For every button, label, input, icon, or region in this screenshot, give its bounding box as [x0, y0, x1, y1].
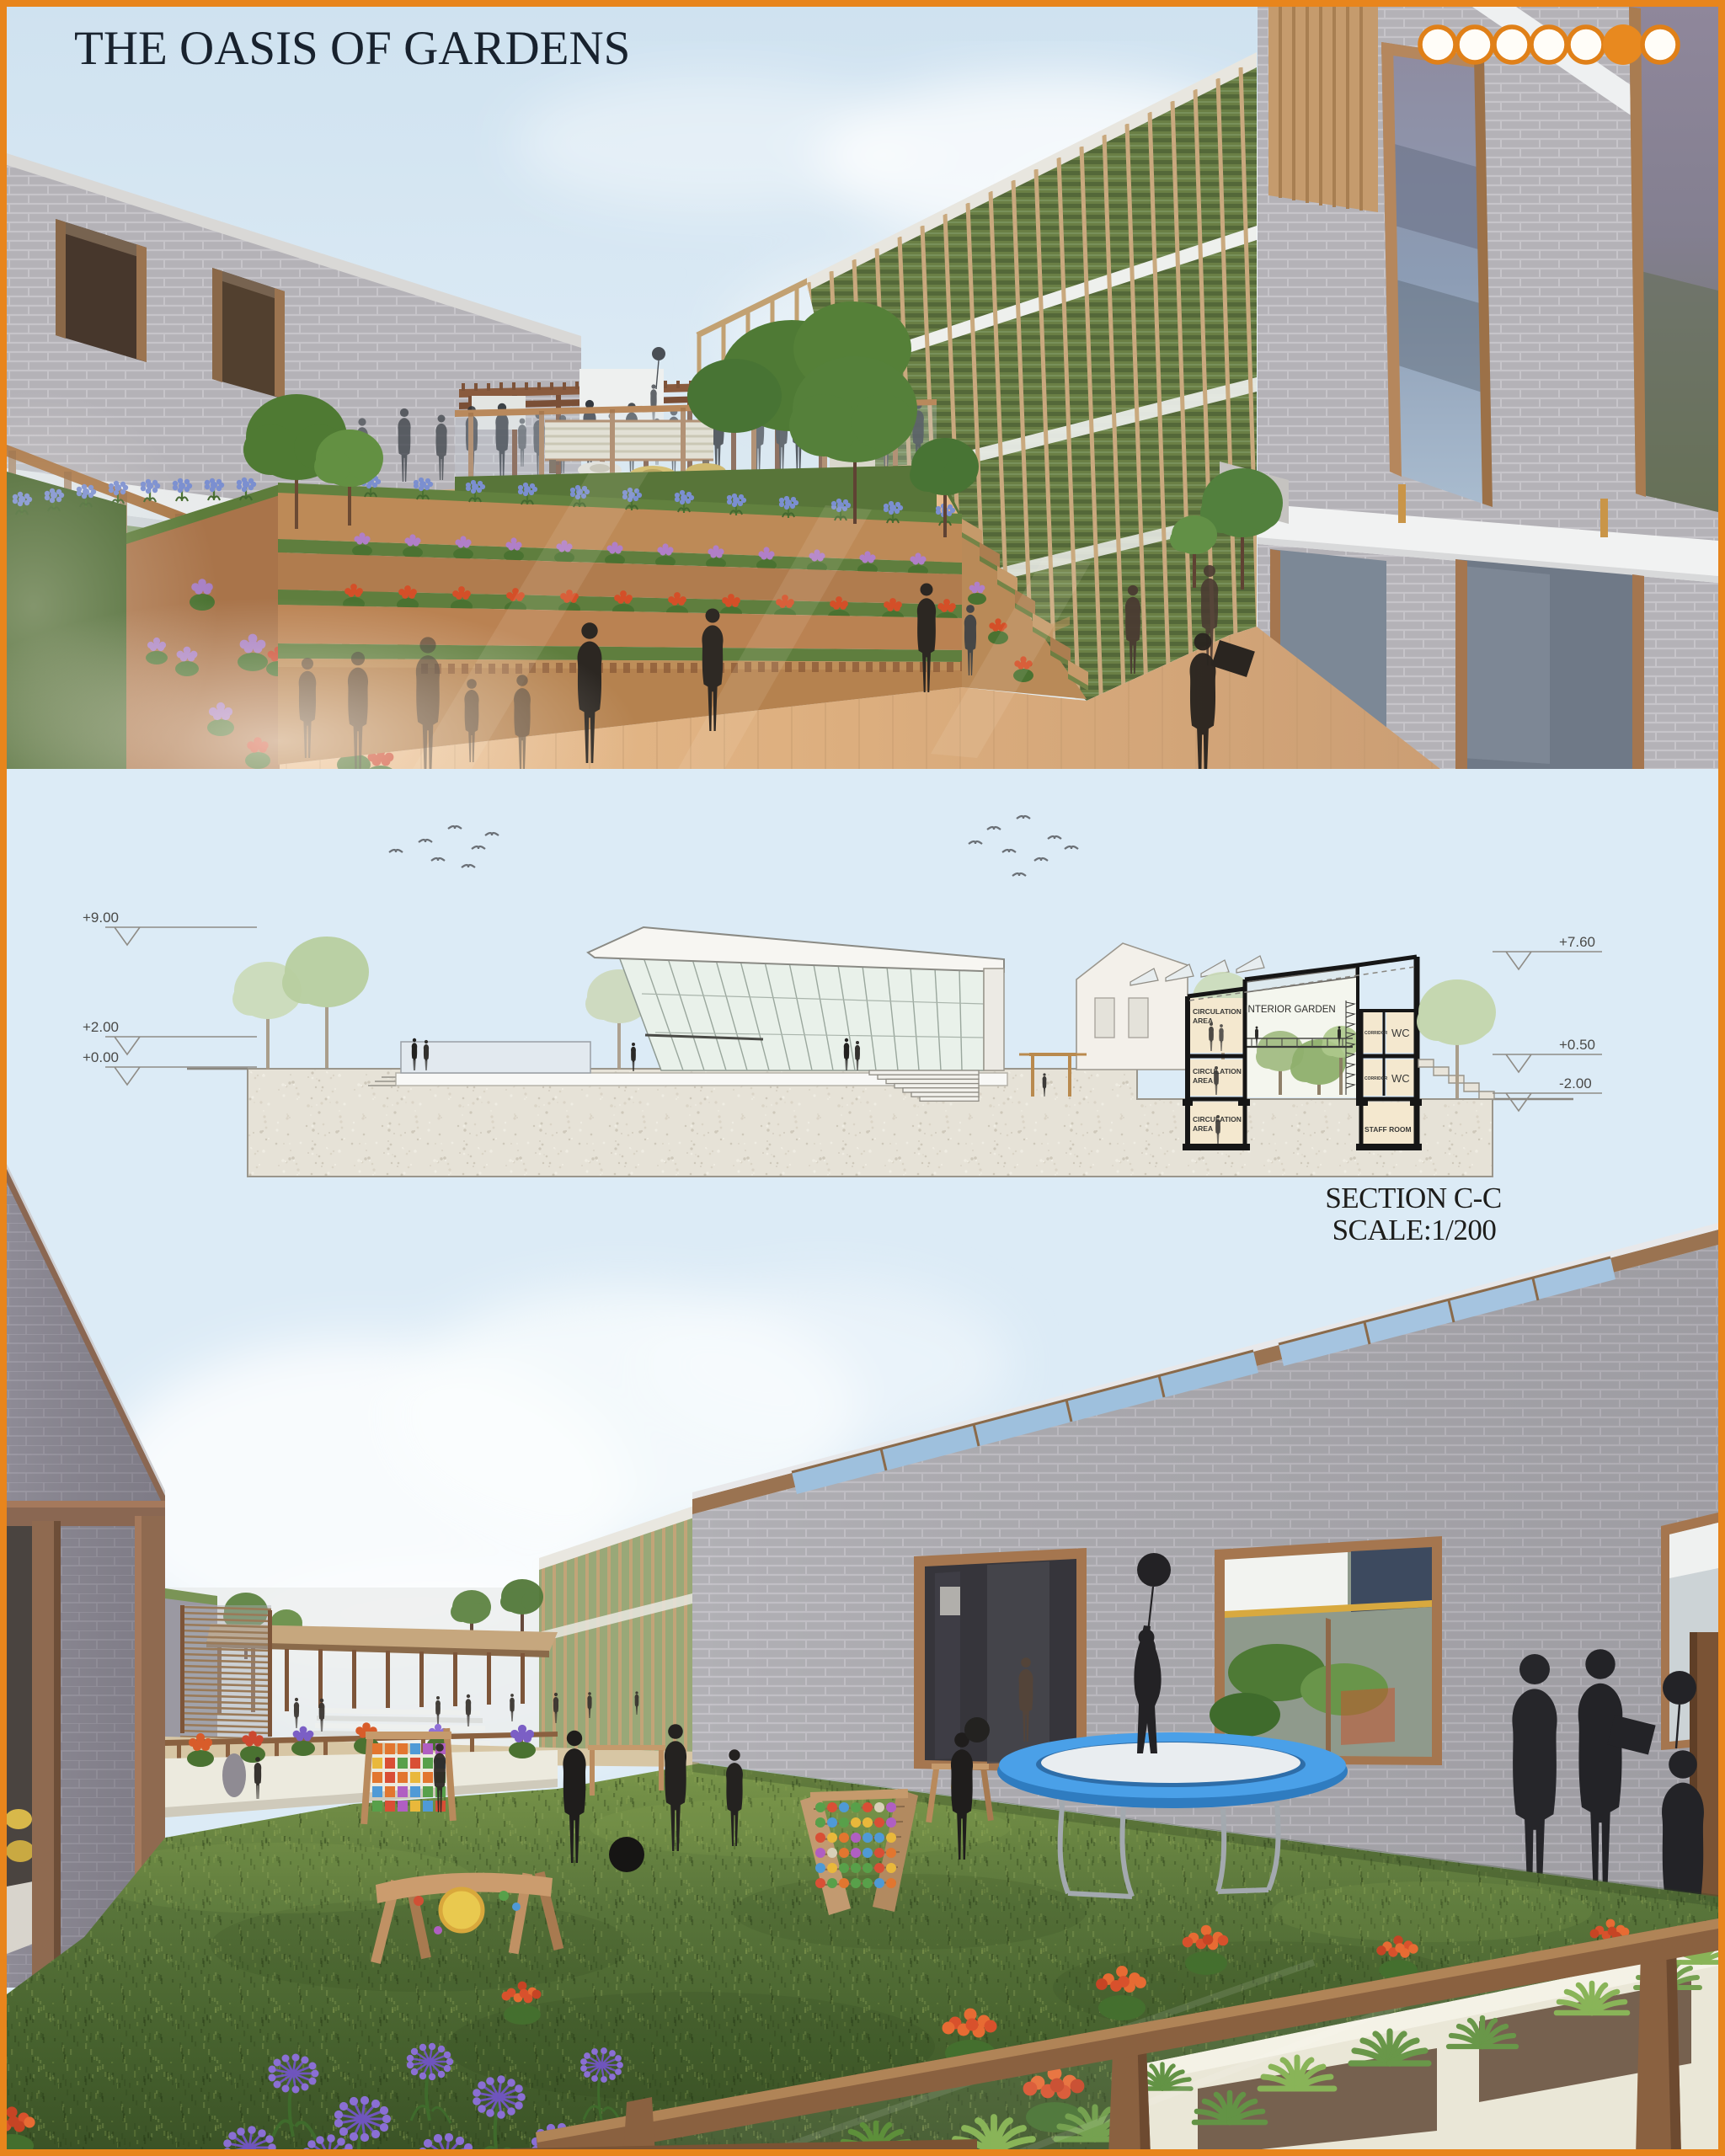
svg-text:WC: WC [1391, 1072, 1410, 1085]
svg-text:+0.50: +0.50 [1559, 1037, 1595, 1053]
svg-text:AREA: AREA [1193, 1124, 1213, 1133]
svg-text:CIRCULATION: CIRCULATION [1193, 1115, 1242, 1123]
svg-text:STAFF ROOM: STAFF ROOM [1365, 1125, 1412, 1134]
svg-text:WC: WC [1391, 1027, 1410, 1039]
svg-text:+2.00: +2.00 [83, 1019, 119, 1035]
svg-text:SECTION C-C: SECTION C-C [1325, 1182, 1501, 1214]
svg-text:+9.00: +9.00 [83, 910, 119, 926]
svg-text:CIRCULATION: CIRCULATION [1193, 1067, 1242, 1075]
svg-text:+0.00: +0.00 [83, 1049, 119, 1065]
svg-text:INTERIOR GARDEN: INTERIOR GARDEN [1245, 1005, 1335, 1015]
svg-text:CORRIDOR: CORRIDOR [1365, 1031, 1388, 1036]
svg-text:CIRCULATION: CIRCULATION [1193, 1007, 1242, 1016]
svg-text:AREA: AREA [1193, 1076, 1213, 1085]
svg-text:-2.00: -2.00 [1559, 1075, 1592, 1091]
svg-text:THE OASIS OF GARDENS: THE OASIS OF GARDENS [74, 22, 630, 75]
svg-text:+7.60: +7.60 [1559, 934, 1595, 950]
svg-text:SCALE:1/200: SCALE:1/200 [1332, 1214, 1497, 1246]
svg-text:CORRIDOR: CORRIDOR [1365, 1076, 1388, 1081]
svg-text:AREA: AREA [1193, 1017, 1213, 1025]
